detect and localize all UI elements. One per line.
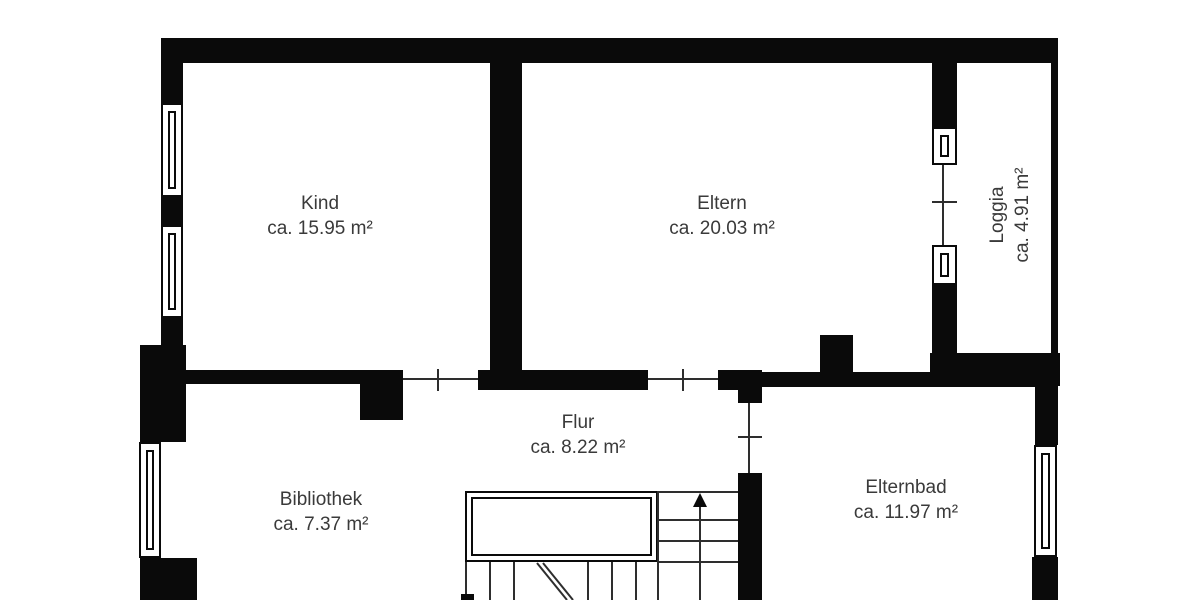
opening-tick-eltern-loggia — [932, 201, 957, 203]
stairs-tread — [489, 562, 491, 600]
stairs-tread — [611, 562, 613, 600]
opening-line-flur-elternbad — [748, 403, 750, 473]
room-label-kind: Kind ca. 15.95 m² — [210, 191, 430, 241]
window-glass — [940, 135, 949, 157]
wall-outer-left-upper — [161, 63, 183, 103]
window-glass — [1041, 453, 1049, 549]
room-label-eltern: Eltern ca. 20.03 m² — [612, 191, 832, 241]
stairs-tread — [513, 562, 515, 600]
room-label-flur: Flur ca. 8.22 m² — [468, 410, 688, 460]
stairs-walk-line — [699, 506, 701, 600]
wall-outer-left-jog — [140, 345, 186, 442]
window-symbol-left-second — [161, 225, 183, 318]
window-symbol-left-lower — [139, 442, 161, 558]
wall-chimney-block — [820, 335, 853, 372]
wall-eltern-loggia-upper — [932, 63, 957, 127]
window-symbol-left-upper — [161, 103, 183, 197]
stairs-tread — [658, 561, 738, 563]
room-name: Eltern — [612, 191, 832, 216]
room-area: ca. 20.03 m² — [612, 216, 832, 241]
window-symbol-loggia-lower — [932, 245, 957, 285]
room-name: Loggia — [985, 115, 1010, 315]
room-name: Bibliothek — [211, 487, 431, 512]
wall-junction-stub — [738, 390, 762, 403]
window-glass — [168, 233, 176, 310]
room-area: ca. 8.22 m² — [468, 435, 688, 460]
wall-kind-flur-divider — [490, 63, 522, 372]
wall-flur-top — [478, 370, 648, 390]
wall-loggia-right — [1051, 63, 1058, 385]
stairs-up-arrow-icon — [693, 493, 707, 507]
room-area: ca. 7.37 m² — [211, 512, 431, 537]
window-glass — [168, 111, 176, 189]
stairs-tread — [635, 562, 637, 600]
stairs-landing-inner — [471, 497, 652, 556]
room-label-bibliothek: Bibliothek ca. 7.37 m² — [211, 487, 431, 537]
wall-outer-top — [161, 38, 1058, 63]
window-glass — [940, 253, 949, 277]
stairs-tread — [658, 540, 738, 542]
opening-line-bibliothek-flur — [403, 378, 478, 380]
wall-elternbad-top — [762, 372, 1035, 387]
wall-outer-left-bottom — [140, 558, 197, 600]
wall-outer-left-mid — [161, 318, 183, 345]
wall-flur-elternbad-lower — [738, 473, 762, 600]
room-area: ca. 4.91 m² — [1010, 115, 1035, 315]
room-name: Elternbad — [796, 475, 1016, 500]
stairs-flight-divider — [657, 491, 659, 600]
window-glass — [146, 450, 154, 550]
stairs-tread — [658, 519, 738, 521]
wall-outer-right-upper — [1035, 386, 1058, 445]
wall-eltern-loggia-lower — [932, 285, 957, 386]
opening-tick-flur-elternbad — [738, 436, 762, 438]
room-label-loggia: Loggia ca. 4.91 m² — [985, 115, 1037, 315]
wall-outer-left-pier — [161, 197, 183, 225]
stairs-walk-line-start-marker — [461, 594, 474, 600]
wall-bibliothek-top — [183, 370, 363, 384]
opening-tick-bibliothek-flur — [437, 369, 439, 391]
room-label-elternbad: Elternbad ca. 11.97 m² — [796, 475, 1016, 525]
room-area: ca. 11.97 m² — [796, 500, 1016, 525]
window-symbol-loggia-upper — [932, 127, 957, 165]
wall-outer-right-bottom — [1032, 557, 1058, 600]
stairs-tread — [587, 562, 589, 600]
room-area: ca. 15.95 m² — [210, 216, 430, 241]
opening-tick-flur-eltern — [682, 369, 684, 391]
room-name: Flur — [468, 410, 688, 435]
floor-plan: Kind ca. 15.95 m² Eltern ca. 20.03 m² Lo… — [0, 0, 1200, 600]
opening-line-eltern-loggia — [942, 165, 944, 245]
wall-bibliothek-top-block — [360, 370, 403, 420]
window-symbol-elternbad-right — [1034, 445, 1057, 557]
wall-junction-block — [718, 370, 762, 390]
room-name: Kind — [210, 191, 430, 216]
